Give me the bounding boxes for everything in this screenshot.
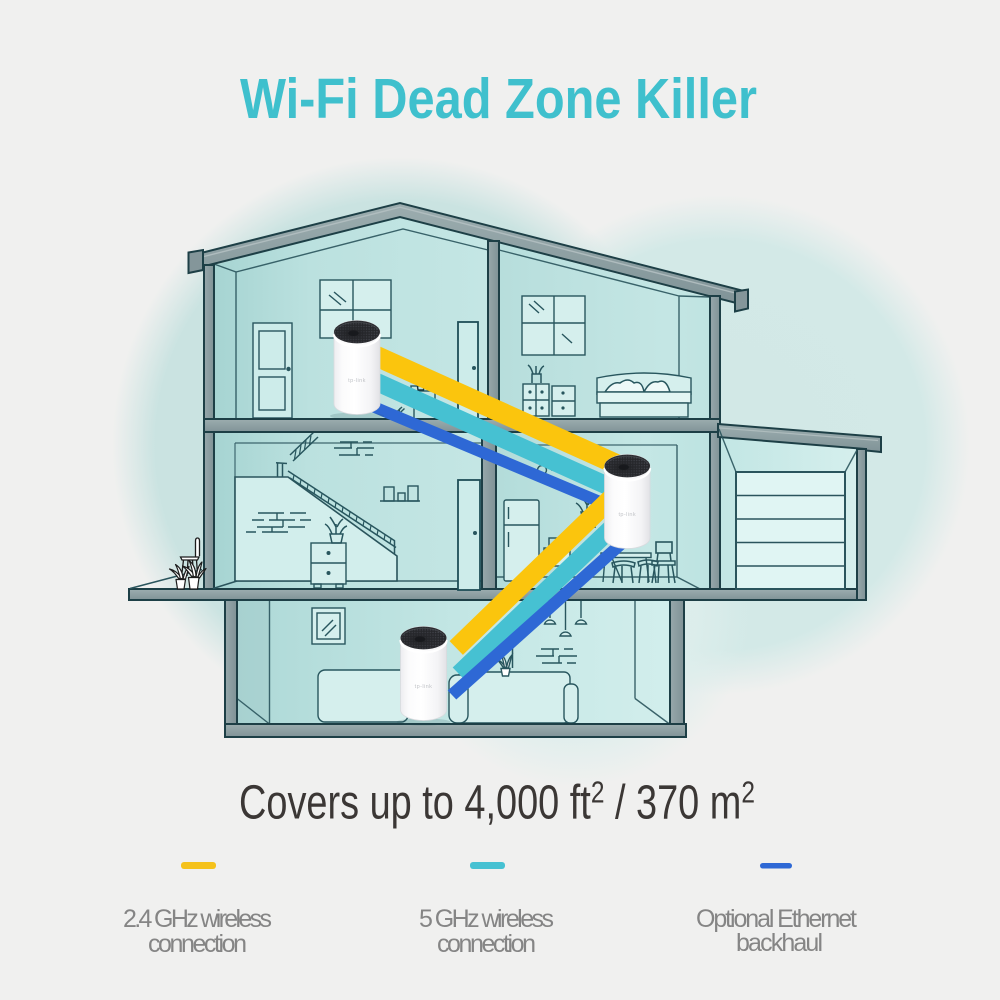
svg-text:2.4 GHz wireless: 2.4 GHz wireless bbox=[123, 905, 272, 933]
svg-text:Covers up to 4,000 ft2 / 370 m: Covers up to 4,000 ft2 / 370 m2 bbox=[239, 775, 755, 830]
svg-text:5 GHz wireless: 5 GHz wireless bbox=[419, 905, 554, 933]
svg-text:backhaul: backhaul bbox=[736, 929, 823, 957]
svg-text:connection: connection bbox=[437, 930, 536, 958]
svg-text:Wi-Fi Dead Zone Killer: Wi-Fi Dead Zone Killer bbox=[240, 67, 757, 131]
svg-text:connection: connection bbox=[148, 930, 247, 958]
